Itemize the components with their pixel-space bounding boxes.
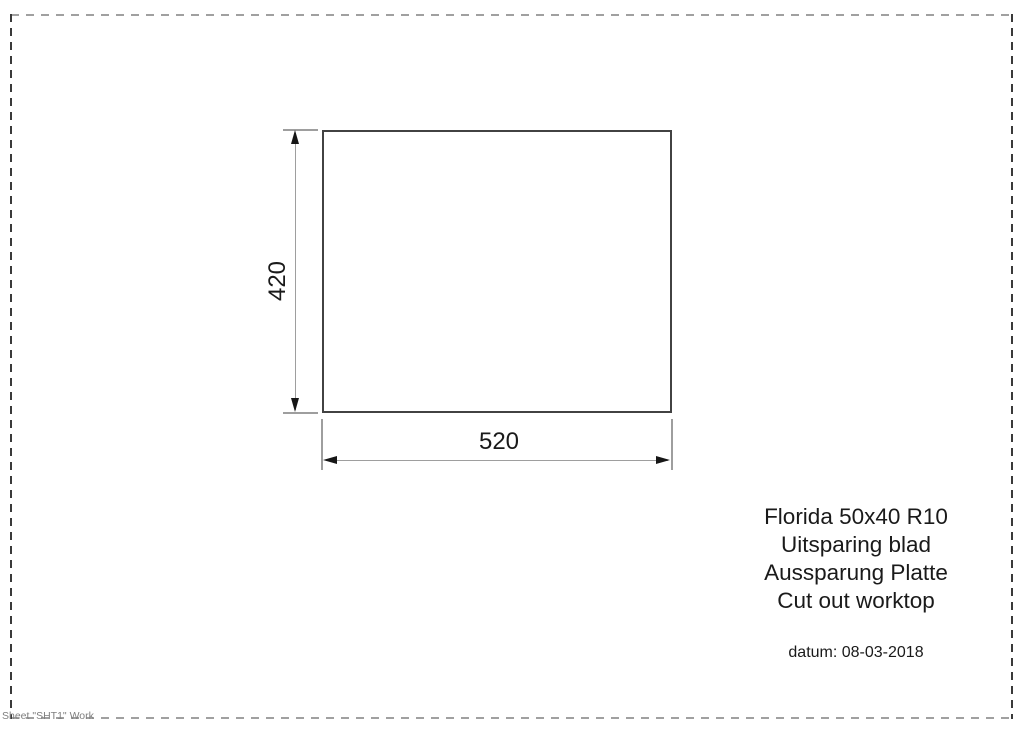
page-border-top	[11, 14, 1012, 16]
subtitle-nl: Uitsparing blad	[728, 531, 984, 559]
width-dimension-line	[326, 460, 668, 462]
height-dimension-arrow-bottom-icon	[291, 398, 299, 412]
height-dimension-line	[295, 133, 297, 410]
sheet-label: Sheet "SHT1" Work	[2, 710, 94, 722]
subtitle-en: Cut out worktop	[728, 587, 984, 615]
product-title: Florida 50x40 R10	[728, 503, 984, 531]
title-block: Florida 50x40 R10 Uitsparing blad Ausspa…	[728, 503, 984, 615]
page-border-bottom	[11, 717, 1012, 719]
height-dimension-tick-bottom	[283, 412, 318, 414]
drawing-sheet: 420 520 Florida 50x40 R10 Uitsparing bla…	[0, 0, 1024, 733]
width-dimension-label: 520	[479, 428, 519, 456]
height-dimension-label: 420	[264, 261, 292, 301]
page-border-right	[1011, 14, 1013, 719]
width-dimension-extension-right	[671, 419, 673, 470]
height-dimension-arrow-top-icon	[291, 130, 299, 144]
date-label: datum: 08-03-2018	[728, 644, 984, 662]
height-dimension-tick-top	[283, 129, 318, 131]
width-dimension-arrow-right-icon	[656, 456, 670, 464]
subtitle-de: Aussparung Platte	[728, 559, 984, 587]
cutout-rectangle	[322, 130, 672, 413]
width-dimension-arrow-left-icon	[323, 456, 337, 464]
page-border-left	[10, 14, 12, 719]
